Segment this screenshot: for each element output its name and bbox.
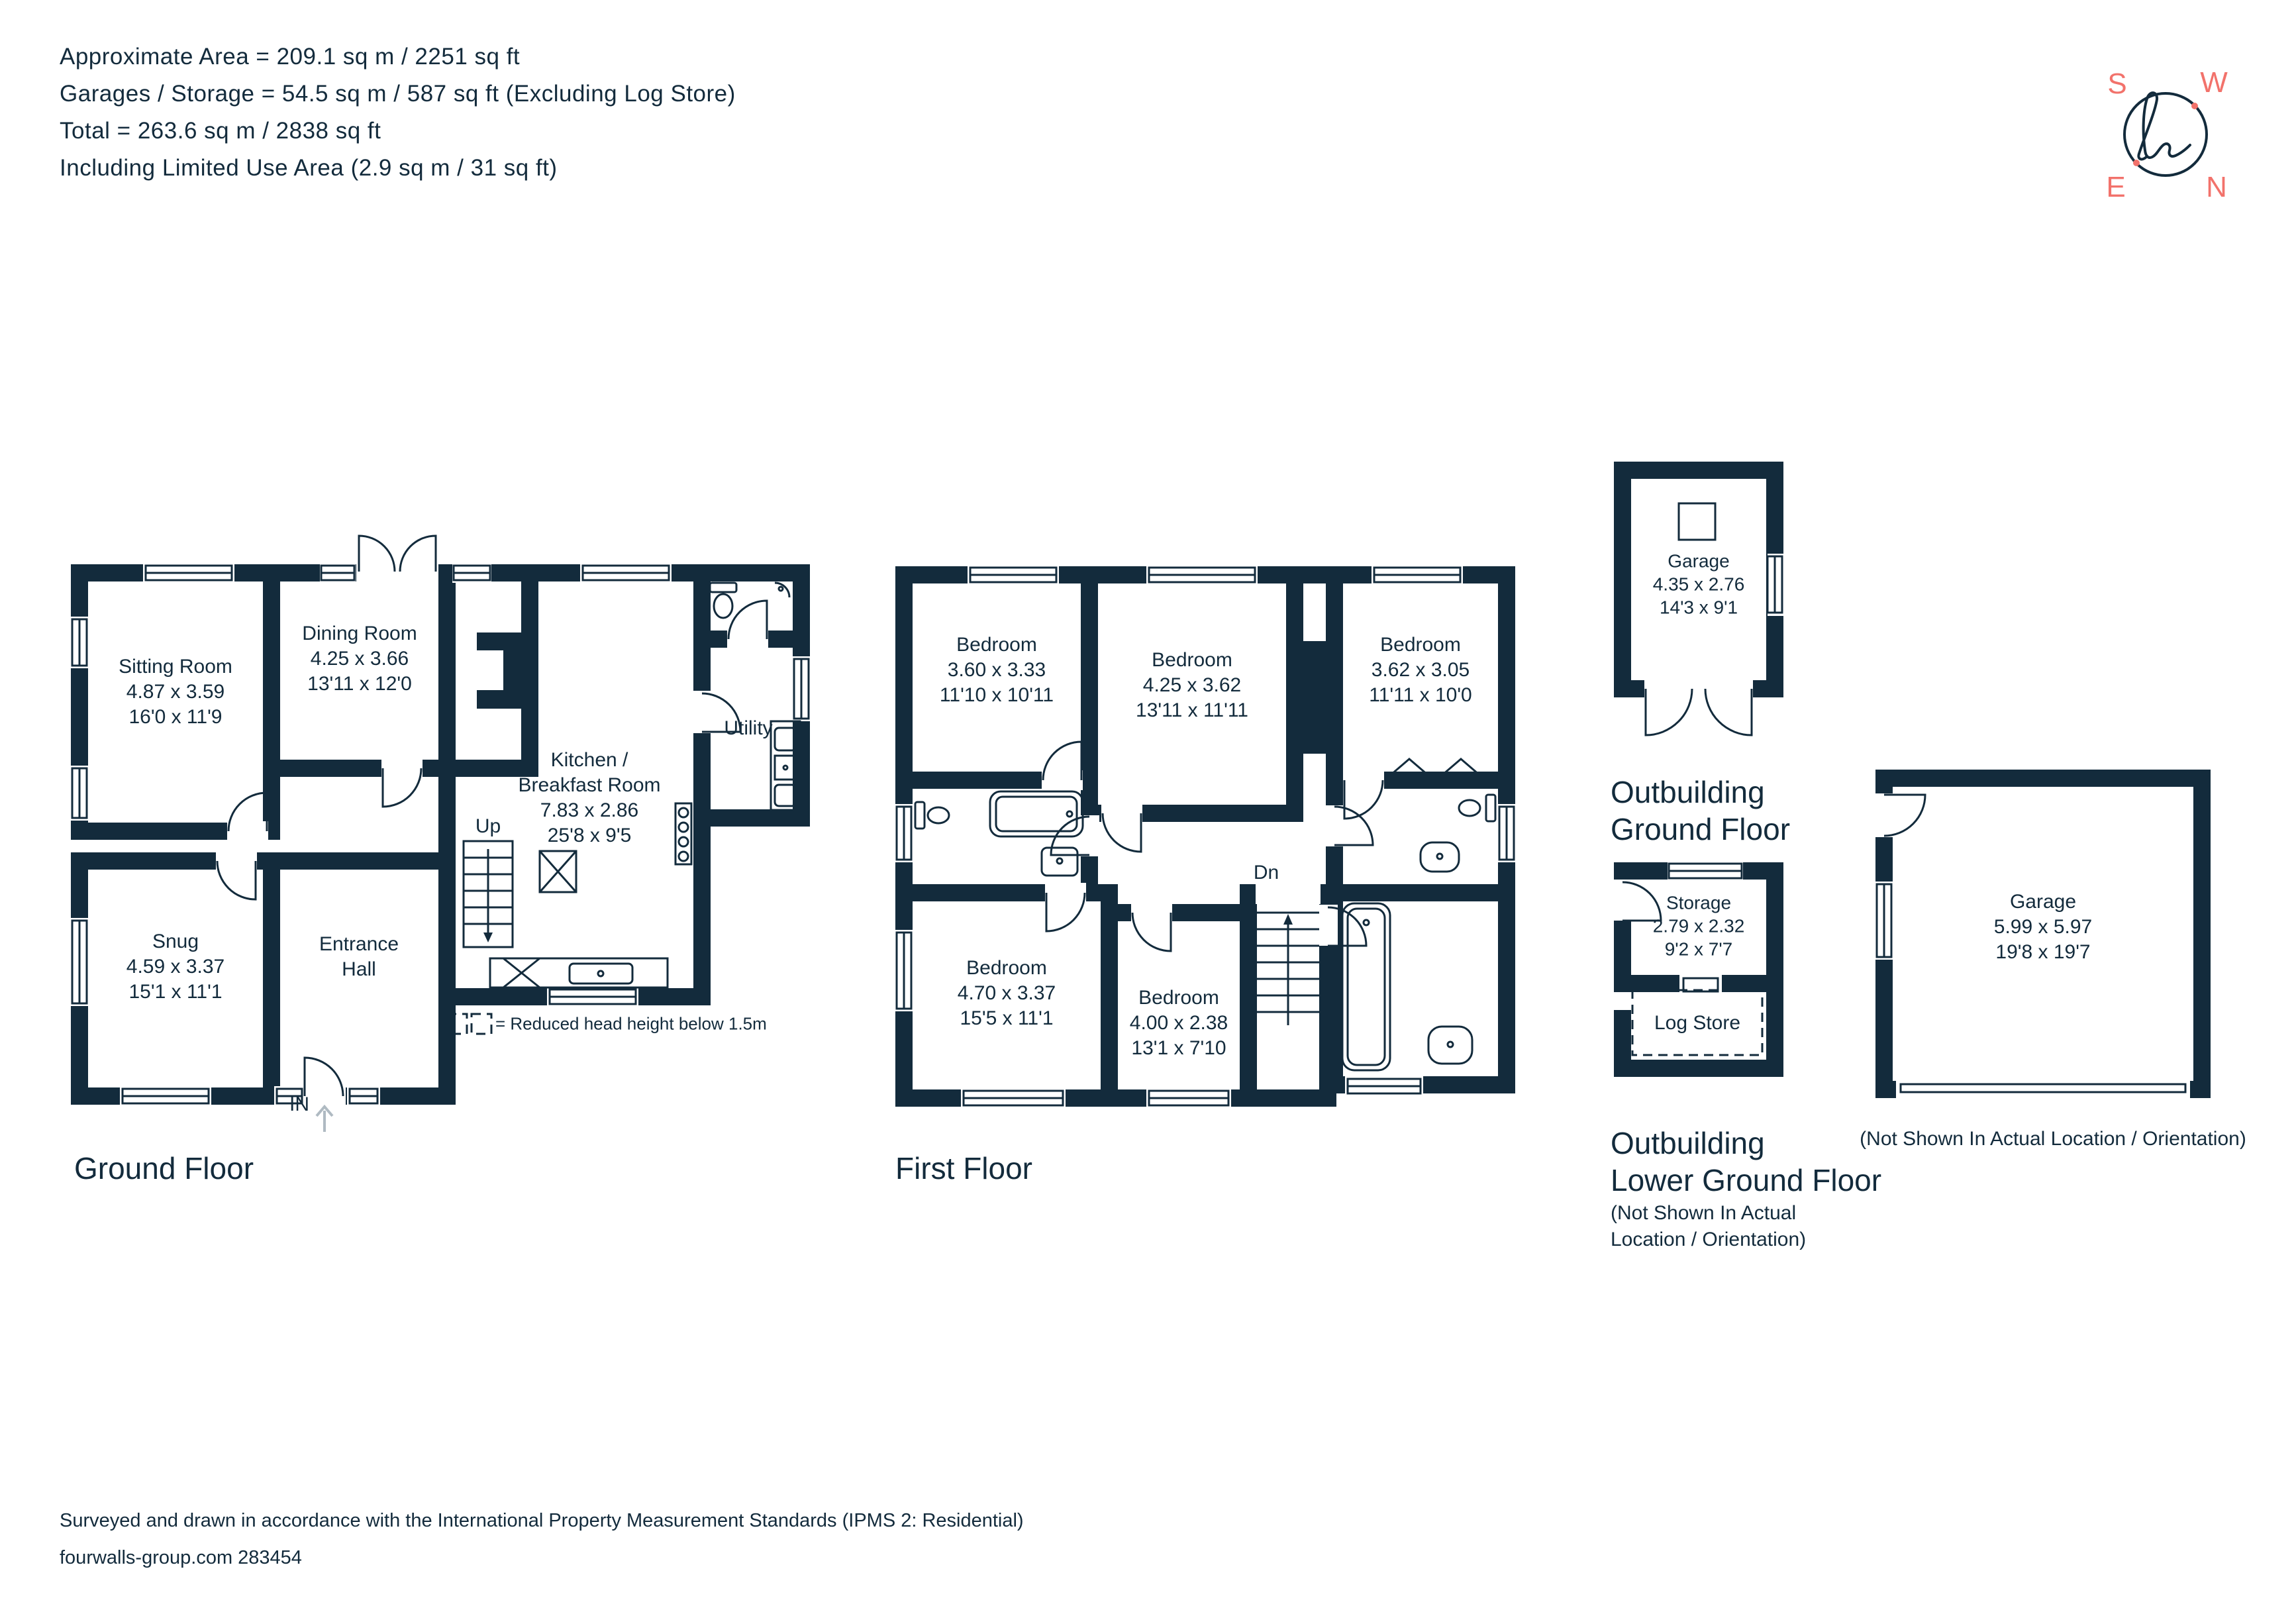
stairs-icon — [1257, 913, 1319, 1025]
floor-caption-outbuilding-gf: Outbuilding Ground Floor — [1611, 774, 1790, 848]
stairs-dn-label: Dn — [1254, 862, 1279, 884]
entrance-in-label: IN — [289, 1093, 309, 1116]
footer-website: fourwalls-group.com 283454 — [60, 1547, 302, 1569]
total-area-line: Total = 263.6 sq m / 2838 sq ft — [60, 118, 381, 144]
stairs-up-label: Up — [475, 815, 501, 838]
toilet-icon — [710, 583, 736, 618]
shower-icon — [775, 583, 789, 597]
floorplan-page: Approximate Area = 209.1 sq m / 2251 sq … — [0, 0, 2296, 1616]
compass-icon: S W E N — [2089, 50, 2242, 209]
floor-caption-ground: Ground Floor — [74, 1150, 254, 1187]
stairs-icon — [464, 841, 513, 947]
room-label-log-store: Log Store — [1654, 1012, 1740, 1035]
skylight-icon — [1679, 503, 1715, 540]
approximate-area-line: Approximate Area = 209.1 sq m / 2251 sq … — [60, 44, 520, 70]
footer-standards: Surveyed and drawn in accordance with th… — [60, 1510, 1024, 1532]
detached-garage-note: (Not Shown In Actual Location / Orientat… — [1834, 1126, 2271, 1152]
limited-use-line: Including Limited Use Area (2.9 sq m / 3… — [60, 155, 558, 181]
floor-caption-first: First Floor — [895, 1150, 1032, 1187]
room-label-sitting: Sitting Room 4.87 x 3.59 16'0 x 11'9 — [119, 654, 232, 730]
compass-west: W — [2200, 66, 2228, 99]
room-label-detached-garage: Garage 5.99 x 5.97 19'8 x 19'7 — [1994, 889, 2092, 965]
utility-sink-icon — [771, 721, 800, 810]
room-label-outbuilding-garage: Garage 4.35 x 2.76 14'3 x 9'1 — [1653, 550, 1745, 619]
outbuilding-lgf-note: (Not Shown In Actual Location / Orientat… — [1611, 1200, 1806, 1253]
logo-h-icon — [2138, 93, 2190, 159]
room-label-storage: Storage 2.79 x 2.32 9'2 x 7'7 — [1653, 891, 1745, 961]
hob-icon — [675, 803, 691, 864]
room-label-kitchen: Kitchen / Breakfast Room 7.83 x 2.86 25'… — [518, 748, 660, 848]
room-label-bedroom-1: Bedroom 3.60 x 3.33 11'10 x 10'11 — [940, 632, 1054, 708]
room-label-dining: Dining Room 4.25 x 3.66 13'11 x 12'0 — [302, 621, 417, 697]
pantry-icon — [540, 851, 576, 892]
room-label-bedroom-3: Bedroom 3.62 x 3.05 11'11 x 10'0 — [1369, 632, 1472, 708]
legend-reduced-head-height: = Reduced head height below 1.5m — [495, 1014, 767, 1035]
room-label-utility: Utility — [724, 716, 772, 741]
room-label-bedroom-4: Bedroom 4.70 x 3.37 15'5 x 11'1 — [958, 956, 1056, 1031]
compass-north: N — [2206, 171, 2227, 203]
entry-arrow-icon — [317, 1107, 332, 1132]
room-label-snug: Snug 4.59 x 3.37 15'1 x 11'1 — [126, 929, 225, 1005]
room-label-bedroom-2: Bedroom 4.25 x 3.62 13'11 x 11'11 — [1136, 648, 1248, 723]
compass-east: E — [2106, 171, 2125, 203]
ground-floor-plan — [66, 520, 841, 1136]
room-label-bedroom-5: Bedroom 4.00 x 2.38 13'1 x 7'10 — [1130, 985, 1228, 1061]
compass-south: S — [2107, 68, 2126, 100]
garages-storage-line: Garages / Storage = 54.5 sq m / 587 sq f… — [60, 81, 736, 107]
kitchen-counter-icon — [490, 958, 668, 987]
wardrobe-block — [1286, 641, 1343, 754]
room-label-entrance-hall: Entrance Hall — [319, 932, 399, 982]
